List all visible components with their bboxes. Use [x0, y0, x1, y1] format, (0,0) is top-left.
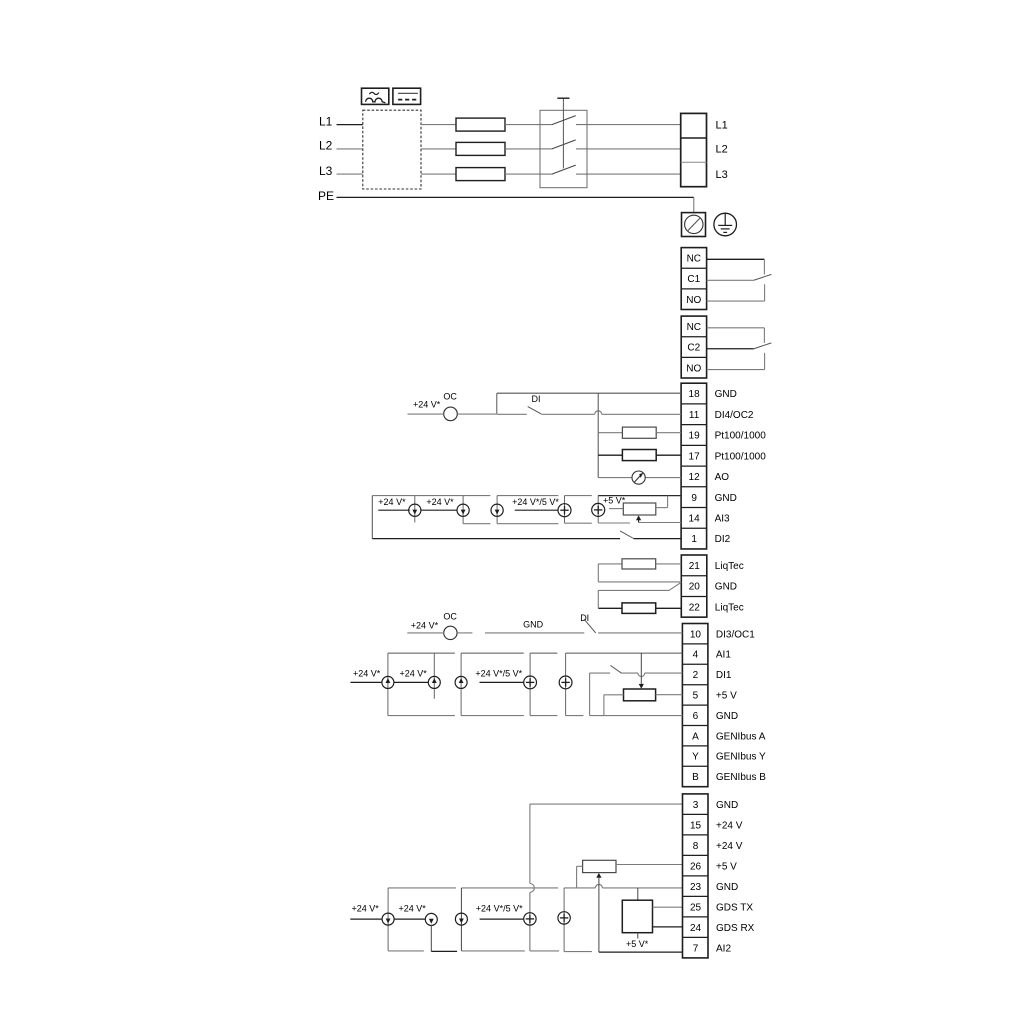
svg-text:+24 V*/5 V*: +24 V*/5 V*	[476, 904, 523, 914]
svg-text:12: 12	[689, 472, 701, 483]
svg-text:22: 22	[689, 602, 701, 613]
svg-text:GND: GND	[716, 711, 738, 722]
svg-text:LiqTec: LiqTec	[715, 561, 744, 572]
svg-text:+24 V*: +24 V*	[426, 497, 454, 507]
svg-text:15: 15	[690, 820, 702, 831]
svg-text:26: 26	[690, 861, 702, 872]
svg-text:LiqTec: LiqTec	[715, 602, 744, 613]
svg-text:GENIbus Y: GENIbus Y	[716, 752, 766, 763]
svg-text:Pt100/1000: Pt100/1000	[715, 451, 767, 462]
svg-text:DI2: DI2	[715, 534, 731, 545]
svg-text:+24 V: +24 V	[716, 841, 743, 852]
svg-text:3: 3	[693, 800, 699, 811]
svg-text:Y: Y	[692, 752, 699, 763]
svg-text:6: 6	[693, 711, 699, 722]
svg-text:AI3: AI3	[715, 513, 730, 524]
svg-text:+24 V*: +24 V*	[352, 904, 380, 914]
svg-text:DI3/OC1: DI3/OC1	[716, 629, 755, 640]
svg-text:GENIbus A: GENIbus A	[716, 731, 766, 742]
svg-text:GND: GND	[715, 582, 737, 593]
svg-text:GENIbus B: GENIbus B	[716, 772, 766, 783]
svg-text:PE: PE	[318, 189, 334, 203]
svg-text:C1: C1	[687, 274, 700, 285]
svg-text:L3: L3	[319, 164, 333, 178]
svg-text:A: A	[692, 731, 699, 742]
svg-text:+24 V*: +24 V*	[413, 400, 441, 410]
svg-text:19: 19	[689, 431, 701, 442]
svg-text:5: 5	[693, 691, 699, 702]
svg-text:+5 V: +5 V	[716, 691, 737, 702]
svg-text:23: 23	[690, 882, 702, 893]
svg-text:GDS TX: GDS TX	[716, 902, 753, 913]
svg-text:18: 18	[689, 389, 701, 400]
svg-text:GND: GND	[715, 493, 737, 504]
svg-text:NC: NC	[687, 254, 701, 265]
svg-text:Pt100/1000: Pt100/1000	[715, 431, 767, 442]
svg-text:+5 V*: +5 V*	[603, 496, 626, 506]
svg-text:21: 21	[689, 561, 701, 572]
svg-text:L2: L2	[319, 139, 333, 153]
svg-text:+24 V*/5 V*: +24 V*/5 V*	[512, 497, 559, 507]
svg-text:OC: OC	[443, 612, 457, 622]
svg-text:L3: L3	[716, 169, 728, 181]
svg-text:GND: GND	[716, 882, 738, 893]
svg-text:7: 7	[693, 943, 699, 954]
svg-text:NO: NO	[686, 363, 701, 374]
svg-text:+24 V*: +24 V*	[378, 497, 406, 507]
svg-text:+24 V*: +24 V*	[353, 669, 381, 679]
svg-text:AO: AO	[715, 472, 730, 483]
svg-text:9: 9	[691, 493, 697, 504]
svg-text:AI2: AI2	[716, 943, 731, 954]
svg-text:+5 V: +5 V	[716, 861, 737, 872]
svg-text:11: 11	[689, 410, 700, 421]
svg-text:+24 V: +24 V	[716, 820, 743, 831]
svg-text:GDS RX: GDS RX	[716, 923, 755, 934]
svg-text:8: 8	[693, 841, 699, 852]
svg-text:L1: L1	[716, 119, 728, 131]
svg-text:DI1: DI1	[716, 670, 732, 681]
svg-text:+24 V*/5 V*: +24 V*/5 V*	[475, 669, 522, 679]
svg-text:24: 24	[690, 923, 702, 934]
svg-text:OC: OC	[443, 392, 457, 402]
svg-text:NO: NO	[686, 295, 701, 306]
svg-text:2: 2	[693, 670, 699, 681]
svg-text:1: 1	[691, 534, 697, 545]
svg-text:+24 V*: +24 V*	[399, 904, 427, 914]
svg-text:14: 14	[689, 513, 701, 524]
svg-text:DI: DI	[580, 613, 589, 623]
svg-text:10: 10	[690, 629, 702, 640]
svg-text:L2: L2	[716, 144, 728, 156]
svg-text:+24 V*: +24 V*	[400, 669, 428, 679]
svg-text:L1: L1	[319, 114, 333, 128]
svg-text:GND: GND	[523, 620, 544, 630]
svg-text:17: 17	[689, 451, 701, 462]
svg-text:20: 20	[689, 582, 701, 593]
svg-text:GND: GND	[716, 800, 738, 811]
svg-text:+24 V*: +24 V*	[411, 621, 439, 631]
svg-text:B: B	[692, 772, 699, 783]
svg-text:NC: NC	[687, 322, 701, 333]
svg-text:GND: GND	[715, 389, 737, 400]
svg-text:AI1: AI1	[716, 650, 731, 661]
svg-text:DI4/OC2: DI4/OC2	[715, 410, 754, 421]
svg-text:DI: DI	[532, 394, 541, 404]
svg-text:C2: C2	[687, 343, 700, 354]
svg-text:4: 4	[693, 650, 699, 661]
svg-text:+5 V*: +5 V*	[626, 939, 649, 949]
svg-text:25: 25	[690, 902, 702, 913]
